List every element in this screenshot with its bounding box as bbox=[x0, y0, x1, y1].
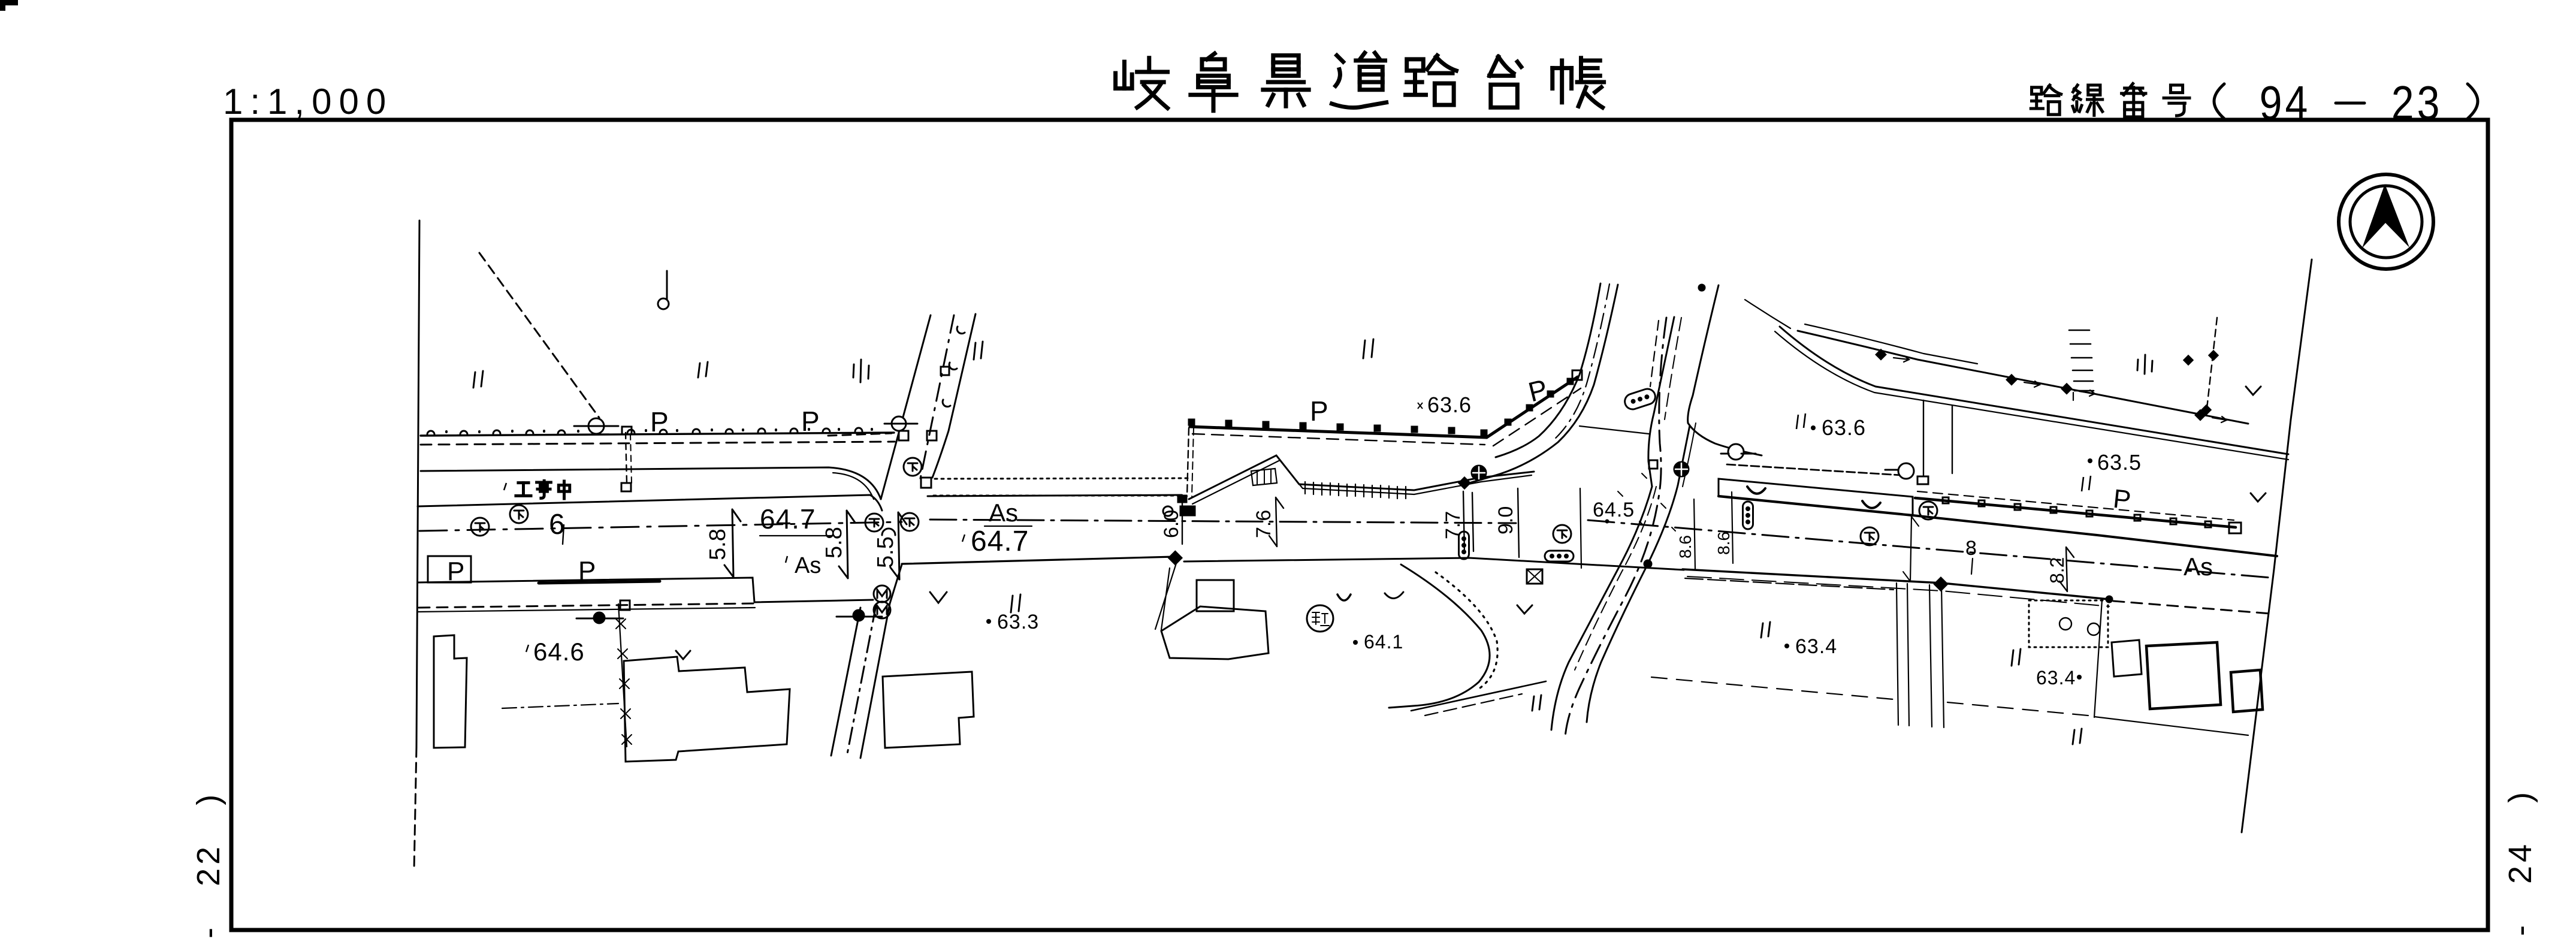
svg-text:7.7: 7.7 bbox=[1442, 511, 1464, 539]
svg-text:5.8: 5.8 bbox=[705, 529, 730, 560]
svg-text:6: 6 bbox=[549, 509, 565, 541]
svg-text:As: As bbox=[2184, 552, 2213, 581]
svg-text:64.6: 64.6 bbox=[533, 638, 585, 666]
svg-text:1:1,000: 1:1,000 bbox=[223, 81, 393, 122]
svg-text:63.6: 63.6 bbox=[1822, 415, 1866, 440]
svg-text:63.4: 63.4 bbox=[1795, 635, 1837, 658]
svg-text:64.5: 64.5 bbox=[1593, 499, 1635, 521]
svg-text:P: P bbox=[1310, 395, 1328, 427]
svg-text:As: As bbox=[989, 499, 1018, 527]
svg-text:8.6: 8.6 bbox=[1714, 532, 1733, 555]
svg-text:63.5: 63.5 bbox=[2097, 450, 2142, 475]
svg-text:64.7: 64.7 bbox=[971, 526, 1029, 557]
svg-text:8: 8 bbox=[1965, 537, 1977, 560]
svg-text:P: P bbox=[447, 557, 464, 586]
svg-text:- 24 ): - 24 ) bbox=[2502, 789, 2538, 936]
svg-text:63.3: 63.3 bbox=[997, 611, 1039, 633]
svg-text:P: P bbox=[650, 406, 669, 437]
svg-text:As: As bbox=[795, 553, 821, 578]
svg-text:6.0: 6.0 bbox=[1160, 510, 1183, 538]
svg-text:- 22 ): - 22 ) bbox=[191, 791, 227, 938]
svg-text:P: P bbox=[578, 556, 596, 585]
svg-text:64.1: 64.1 bbox=[1364, 631, 1403, 653]
svg-text:P: P bbox=[1525, 373, 1550, 408]
svg-text:9.0: 9.0 bbox=[1494, 506, 1517, 535]
svg-text:63.6: 63.6 bbox=[1427, 393, 1472, 417]
svg-text:5.8: 5.8 bbox=[822, 527, 847, 558]
svg-text:63.4: 63.4 bbox=[2036, 667, 2076, 689]
svg-text:P: P bbox=[801, 406, 820, 437]
svg-text:64.7: 64.7 bbox=[760, 503, 816, 535]
svg-text:7.6: 7.6 bbox=[1252, 510, 1275, 538]
svg-text:5.5: 5.5 bbox=[873, 536, 898, 568]
svg-text:P: P bbox=[2112, 484, 2132, 515]
svg-text:8.2: 8.2 bbox=[2046, 557, 2068, 584]
svg-text:8.6: 8.6 bbox=[1676, 535, 1695, 558]
